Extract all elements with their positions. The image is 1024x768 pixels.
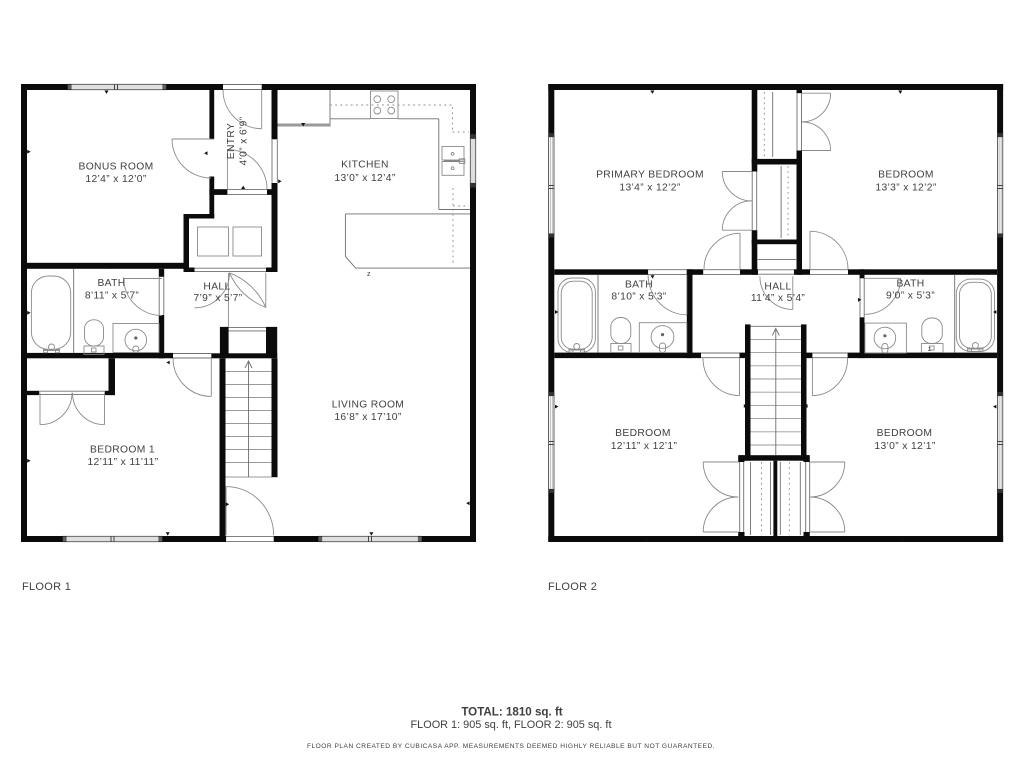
svg-text:PRIMARY BEDROOM: PRIMARY BEDROOM <box>596 170 704 181</box>
svg-text:BEDROOM: BEDROOM <box>878 170 934 181</box>
svg-text:BEDROOM: BEDROOM <box>877 428 933 439</box>
svg-text:FLOOR 1: 905 sq. ft, FLOOR 2:: FLOOR 1: 905 sq. ft, FLOOR 2: 905 sq. ft <box>411 719 612 731</box>
svg-text:4’0” x 6’9”: 4’0” x 6’9” <box>239 116 250 165</box>
svg-text:12’11” x 12’1”: 12’11” x 12’1” <box>611 441 678 452</box>
svg-text:13’4” x 12’2”: 13’4” x 12’2” <box>619 183 680 194</box>
svg-text:HALL: HALL <box>764 282 791 293</box>
svg-text:7’9” x 5’7”: 7’9” x 5’7” <box>193 293 242 304</box>
svg-text:12’11” x 11’11”: 12’11” x 11’11” <box>87 457 158 468</box>
svg-text:KITCHEN: KITCHEN <box>341 160 389 171</box>
svg-text:FLOOR 2: FLOOR 2 <box>548 581 597 593</box>
svg-text:BATH: BATH <box>625 280 653 291</box>
svg-text:FLOOR 1: FLOOR 1 <box>22 581 71 593</box>
svg-text:BEDROOM: BEDROOM <box>615 428 671 439</box>
svg-text:8’10” x 5’3”: 8’10” x 5’3” <box>611 292 666 303</box>
svg-text:TOTAL: 1810 sq. ft: TOTAL: 1810 sq. ft <box>461 706 562 719</box>
svg-text:ENTRY: ENTRY <box>226 123 237 159</box>
svg-text:16’8” x 17’10”: 16’8” x 17’10” <box>334 412 402 423</box>
svg-text:BATH: BATH <box>97 278 125 289</box>
svg-text:HALL: HALL <box>203 282 230 293</box>
svg-text:12’4” x 12’0”: 12’4” x 12’0” <box>85 174 146 185</box>
svg-text:FLOOR PLAN CREATED BY CUBICASA: FLOOR PLAN CREATED BY CUBICASA APP. MEAS… <box>307 743 715 750</box>
svg-text:z: z <box>928 347 931 353</box>
svg-text:13’0” x 12’4”: 13’0” x 12’4” <box>334 173 395 184</box>
svg-text:BONUS ROOM: BONUS ROOM <box>78 162 153 173</box>
svg-text:13’3” x 12’2”: 13’3” x 12’2” <box>875 183 936 194</box>
svg-text:11’4” x 5’4”: 11’4” x 5’4” <box>751 293 806 304</box>
svg-text:BEDROOM 1: BEDROOM 1 <box>90 445 155 456</box>
svg-text:BATH: BATH <box>896 279 924 290</box>
svg-text:13’0” x 12’1”: 13’0” x 12’1” <box>874 441 935 452</box>
svg-text:z: z <box>367 271 371 278</box>
svg-text:9’0” x 5’3”: 9’0” x 5’3” <box>886 291 935 302</box>
svg-text:LIVING ROOM: LIVING ROOM <box>332 400 405 411</box>
svg-text:8’11” x 5’7”: 8’11” x 5’7” <box>85 291 140 302</box>
